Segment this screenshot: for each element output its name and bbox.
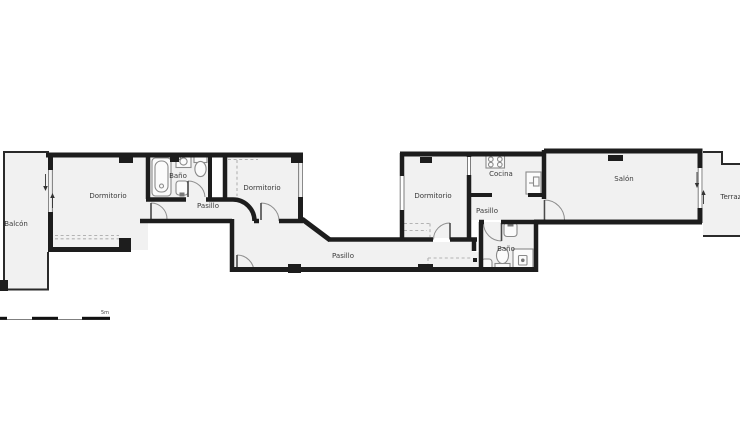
room-label-terraza: Terraza [719, 193, 740, 201]
wall-pier [608, 155, 623, 161]
stove-icon [486, 156, 505, 169]
scale-bar-label: 5m [101, 310, 109, 316]
wall-pier [418, 264, 433, 272]
scale-bar: 5m [0, 310, 110, 320]
room-label-cocina: Cocina [489, 170, 513, 178]
wall-pier [119, 157, 133, 163]
room-label-pasillo-1: Pasillo [197, 202, 219, 210]
room-label-pasillo-2: Pasillo [332, 252, 354, 260]
kitchen-pass-window [468, 157, 471, 175]
room-label-bano-1: Baño [169, 172, 187, 180]
room-label-dormitorio-2: Dormitorio [243, 184, 280, 192]
room-label-dormitorio-1: Dormitorio [89, 192, 126, 200]
room-label-salon: Salón [614, 175, 633, 183]
wall-pier [291, 157, 299, 163]
wall-pier [420, 157, 432, 163]
room-label-dormitorio-3: Dormitorio [414, 192, 451, 200]
livingroom-floor [546, 153, 698, 219]
floor-plan-page: Balcón Dormitorio Baño Pasillo Dormitori… [0, 0, 740, 445]
wall-pier [170, 153, 179, 162]
patio-window-bedroom3 [400, 176, 404, 210]
room-label-bano-2: Baño [497, 245, 515, 253]
wall-pier [119, 238, 131, 250]
entrance-threshold [288, 264, 301, 273]
sink-icon-2 [504, 223, 517, 237]
room-label-pasillo-3: Pasillo [476, 207, 498, 215]
bedroom1-floor [50, 155, 148, 250]
room-label-balcon: Balcón [4, 220, 28, 228]
sink-icon [176, 181, 188, 197]
toilet-icon [194, 156, 207, 177]
floor-plan-drawing: Balcón Dormitorio Baño Pasillo Dormitori… [0, 0, 740, 445]
fridge-icon [526, 172, 541, 194]
wall-pier [473, 258, 477, 262]
